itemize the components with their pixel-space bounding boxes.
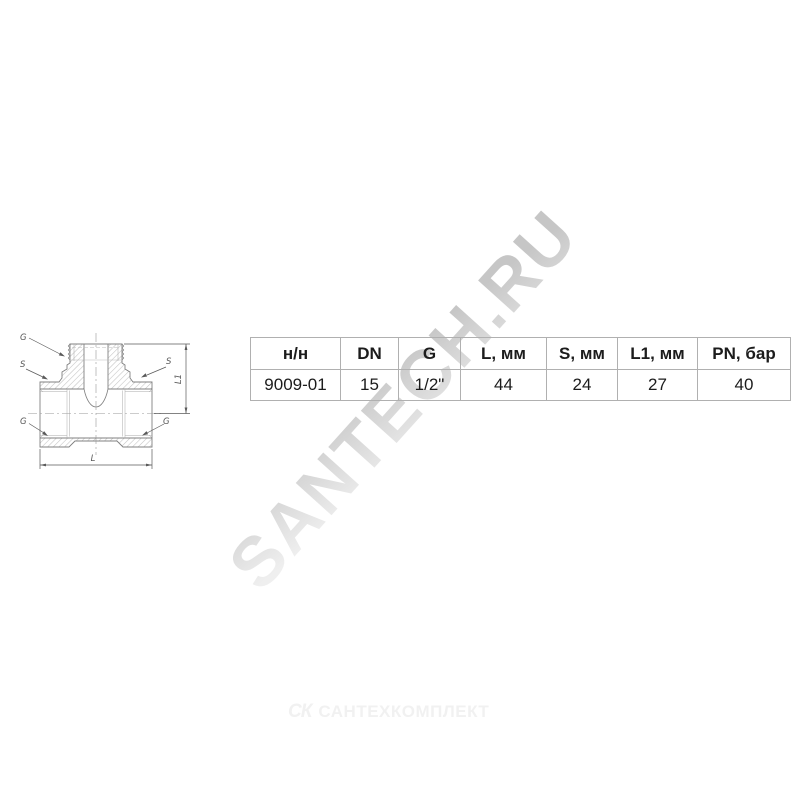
table-row: 9009-01 15 1/2" 44 24 27 40 — [251, 370, 791, 401]
leader-g-bottom-left — [29, 424, 48, 437]
header-g: G — [399, 338, 461, 370]
cell-s: 24 — [547, 370, 618, 401]
cell-pn: 40 — [698, 370, 791, 401]
page: SANTECH.RU — [0, 0, 800, 800]
leader-s-right — [141, 367, 166, 378]
leader-g-top — [29, 338, 65, 357]
label-s-right: S — [166, 357, 172, 367]
dimension-l1-label: L1 — [174, 374, 184, 384]
brand-logo-icon: СК — [288, 701, 311, 723]
cell-g: 1/2" — [399, 370, 461, 401]
dimension-l-label: L — [91, 454, 96, 464]
spec-table: н/н DN G L, мм S, мм L1, мм PN, бар 9009… — [250, 337, 791, 401]
brand-name: САНТЕХКОМПЛЕКТ — [318, 702, 489, 722]
header-nn: н/н — [251, 338, 341, 370]
header-pn-bar: PN, бар — [698, 338, 791, 370]
table-header-row: н/н DN G L, мм S, мм L1, мм PN, бар — [251, 338, 791, 370]
center-lines — [28, 333, 164, 455]
cell-article: 9009-01 — [251, 370, 341, 401]
footer-brand: СК САНТЕХКОМПЛЕКТ — [288, 701, 489, 723]
cell-l: 44 — [461, 370, 547, 401]
leader-s-left — [26, 369, 48, 380]
cell-l1: 27 — [618, 370, 698, 401]
label-g-bottom-right: G — [163, 417, 170, 427]
label-s-left: S — [20, 360, 26, 370]
header-l1-mm: L1, мм — [618, 338, 698, 370]
header-dn: DN — [341, 338, 399, 370]
label-g-top: G — [20, 333, 27, 343]
leader-g-bottom-right — [142, 424, 164, 436]
tee-fitting-drawing: L1 L G S — [16, 326, 200, 478]
header-l-mm: L, мм — [461, 338, 547, 370]
label-g-bottom-left: G — [20, 417, 27, 427]
cell-dn: 15 — [341, 370, 399, 401]
header-s-mm: S, мм — [547, 338, 618, 370]
